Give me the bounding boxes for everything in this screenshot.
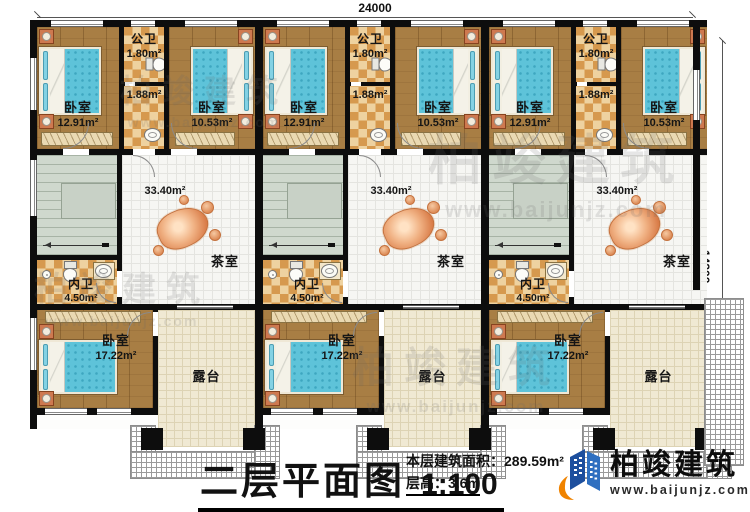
headboard-cushions [468, 49, 477, 113]
window [30, 318, 37, 370]
door-gap [397, 149, 423, 155]
door-gap [343, 271, 348, 297]
nightstand [39, 391, 54, 406]
headboard-cushions [267, 342, 276, 392]
room-label: 公卫 [131, 32, 157, 46]
window [271, 408, 313, 415]
brand-name: 柏竣建筑 [610, 451, 750, 480]
mattress [193, 49, 227, 113]
room-area: 1.88m² [576, 89, 616, 101]
dwelling-unit: 卧室 12.91m² 公卫 1.80m² 1.88m² 卧室 10.53m² [255, 27, 481, 429]
dimension-line-top [37, 17, 693, 18]
railing-post [469, 428, 491, 450]
staircase [489, 155, 569, 255]
room-label: 露台 [418, 369, 446, 384]
window [497, 408, 539, 415]
room-area: 33.40m² [130, 185, 200, 197]
wall [489, 255, 574, 260]
room-area: 1.88m² [350, 89, 390, 101]
nightstand [491, 324, 506, 339]
room-area: 33.40m² [356, 185, 426, 197]
nightstand [464, 114, 479, 129]
nightstand [265, 391, 280, 406]
bed [39, 47, 101, 115]
pillow [50, 342, 65, 392]
nightstand [39, 114, 54, 129]
brand-logo: 柏竣建筑 www.baijunjz.com [552, 447, 750, 501]
door-gap [133, 149, 155, 155]
sink-icon [547, 264, 564, 278]
door-gap [63, 149, 89, 155]
staircase [37, 155, 117, 255]
window [185, 20, 237, 27]
sliding-door [177, 305, 233, 309]
sink-icon [144, 128, 161, 142]
lamp-icon [494, 270, 503, 279]
floor-plan: 卧室 12.91m² 公卫 1.80m² 1.88m² 卧室 10.53m² [30, 20, 707, 429]
bedroom-bottom: 卧室 17.22m² [263, 310, 379, 408]
door-gap [351, 82, 361, 86]
door-gap [605, 312, 610, 336]
railing-post [243, 428, 265, 450]
window [503, 20, 555, 27]
nightstand [265, 114, 280, 129]
floor-height-text: 层高：3.6m [406, 474, 480, 496]
door-gap [359, 149, 381, 155]
public-bathroom: 公卫 1.80m² 1.88m² [576, 27, 616, 149]
nightstand [238, 29, 253, 44]
pillow [502, 342, 517, 392]
door-gap [125, 82, 135, 86]
mattress [517, 49, 551, 113]
terrace-railing [704, 298, 744, 466]
wall [263, 255, 348, 260]
room-area: 1.88m² [124, 89, 164, 101]
nightstand [39, 29, 54, 44]
room-label: 公卫 [357, 32, 383, 46]
wall [37, 255, 122, 260]
wall [37, 304, 158, 310]
door-arc [548, 283, 568, 303]
wall [345, 27, 350, 149]
brand-logo-icon [552, 447, 604, 501]
tea-room: 33.40m² 茶室 [348, 155, 481, 304]
door-arc [322, 283, 342, 303]
nightstand [238, 114, 253, 129]
railing-post [367, 428, 389, 450]
window [131, 20, 155, 27]
sink-icon [95, 264, 112, 278]
staircase [263, 155, 343, 255]
wall [693, 20, 700, 290]
wall [119, 27, 124, 149]
mattress [517, 342, 567, 392]
window [323, 408, 357, 415]
window [693, 70, 700, 120]
sliding-door [629, 305, 685, 309]
wardrobe [497, 311, 593, 323]
room-label: 露台 [644, 369, 672, 384]
door-gap [577, 82, 587, 86]
headboard-cushions [41, 49, 50, 113]
room-area: 33.40m² [582, 185, 652, 197]
nightstand [491, 391, 506, 406]
window [411, 20, 463, 27]
wall [616, 27, 621, 149]
wall [263, 304, 384, 310]
pillow [276, 342, 291, 392]
pillow [453, 49, 468, 113]
nightstand [39, 324, 54, 339]
railing-post [141, 428, 163, 450]
bed [39, 340, 117, 394]
door-gap [379, 312, 384, 336]
inner-bathroom: 内卫 4.50m² [37, 260, 117, 304]
stair-direction-arrow [43, 245, 107, 246]
mattress [291, 49, 325, 113]
bed [491, 340, 569, 394]
public-bathroom: 公卫 1.80m² 1.88m² [350, 27, 390, 149]
bed [191, 47, 253, 115]
headboard-cushions [242, 49, 251, 113]
toilet-icon [515, 261, 529, 282]
nightstand [464, 29, 479, 44]
dwelling-unit: 卧室 12.91m² 公卫 1.80m² 1.88m² 卧室 10.53m² [481, 27, 707, 429]
window [30, 160, 37, 216]
window [549, 408, 583, 415]
headboard-cushions [493, 342, 502, 392]
dwelling-unit: 卧室 12.91m² 公卫 1.80m² 1.88m² 卧室 10.53m² [37, 27, 255, 429]
window [97, 408, 131, 415]
tea-table-stone [371, 199, 451, 261]
door-gap [171, 149, 197, 155]
headboard-cushions [493, 49, 502, 113]
bedroom-bottom: 卧室 17.22m² [37, 310, 153, 408]
tea-table-stone [145, 199, 225, 261]
pillow [276, 49, 291, 113]
door-gap [117, 271, 122, 297]
nightstand [491, 29, 506, 44]
pillow [227, 49, 242, 113]
bed [417, 47, 479, 115]
wall [571, 27, 576, 149]
mattress [291, 342, 341, 392]
headboard-cushions [41, 342, 50, 392]
sink-icon [321, 264, 338, 278]
pillow [50, 49, 65, 113]
headboard-cushions [267, 49, 276, 113]
door-gap [623, 149, 649, 155]
sink-icon [370, 128, 387, 142]
bed [265, 340, 343, 394]
public-bathroom: 公卫 1.80m² 1.88m² [124, 27, 164, 149]
bedroom-bottom: 卧室 17.22m² [489, 310, 605, 408]
window [583, 20, 607, 27]
stair-direction-arrow [269, 245, 333, 246]
sink-icon [596, 128, 613, 142]
window [51, 20, 103, 27]
mattress [419, 49, 453, 113]
inner-bathroom: 内卫 4.50m² [263, 260, 343, 304]
window [45, 408, 87, 415]
drawing-title: 二层平面图 [200, 450, 405, 505]
window [277, 20, 329, 27]
mattress [65, 342, 115, 392]
tea-room: 33.40m² 茶室 [122, 155, 255, 304]
toilet-icon [289, 261, 303, 282]
sliding-door [403, 305, 459, 309]
nightstand [265, 29, 280, 44]
stair-landing [513, 183, 568, 219]
pillow [502, 49, 517, 113]
mattress [65, 49, 99, 113]
tea-table-stone [597, 199, 677, 261]
door-gap [569, 271, 574, 297]
floor-area-text: 本层建筑面积：289.59m² [406, 452, 564, 471]
toilet-icon [63, 261, 77, 282]
bed [265, 47, 327, 115]
wall [164, 27, 169, 149]
bed [491, 47, 553, 115]
wardrobe [45, 311, 141, 323]
window [30, 58, 37, 110]
terrace: 露台 [158, 310, 255, 447]
door-gap [585, 149, 607, 155]
door-gap [153, 312, 158, 336]
wardrobe [271, 311, 367, 323]
inner-bathroom: 内卫 4.50m² [489, 260, 569, 304]
room-label: 露台 [192, 369, 220, 384]
door-arc [96, 283, 116, 303]
nightstand [265, 324, 280, 339]
stair-direction-arrow [495, 245, 559, 246]
room-label: 公卫 [583, 32, 609, 46]
tea-room: 33.40m² 茶室 [574, 155, 707, 304]
wall [489, 304, 610, 310]
stair-landing [287, 183, 342, 219]
brand-website: www.baijunjz.com [610, 483, 750, 497]
door-gap [515, 149, 541, 155]
pillow [679, 49, 694, 113]
drawing-info: 本层建筑面积：289.59m² 层高：3.6m [406, 452, 564, 496]
nightstand [491, 114, 506, 129]
terrace: 露台 [384, 310, 481, 447]
stair-landing [61, 183, 116, 219]
door-gap [289, 149, 315, 155]
window [637, 20, 689, 27]
lamp-icon [42, 270, 51, 279]
mattress [645, 49, 679, 113]
terrace: 露台 [610, 310, 707, 447]
wall [390, 27, 395, 149]
lamp-icon [268, 270, 277, 279]
window [357, 20, 381, 27]
dimension-top: 24000 [0, 1, 750, 15]
